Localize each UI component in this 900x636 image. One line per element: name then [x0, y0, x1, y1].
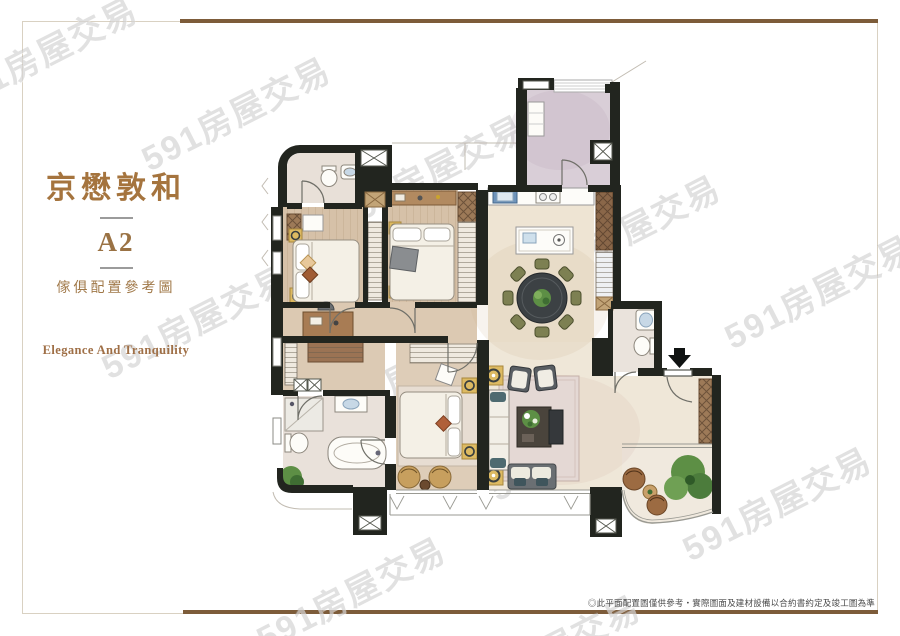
plan-subtitle: 傢俱配置參考圖: [18, 277, 214, 297]
project-title: 京懋敦和: [18, 163, 214, 207]
entry-cabinet: [699, 379, 712, 443]
floor-plan: [250, 55, 750, 547]
unit-label: A2: [18, 227, 214, 258]
english-tagline: Elegance And Tranquility: [18, 343, 214, 358]
utility-strip: [596, 192, 613, 310]
living-room-furniture: [481, 365, 579, 489]
divider-top: [100, 217, 133, 219]
entry-arrow-icon: [668, 348, 691, 368]
divider-bottom: [100, 267, 133, 269]
frame-thick-bottom-line: [183, 610, 878, 614]
disclaimer-text: ◎此平面配置圖僅供參考・實際圖面及建材設備以合約書約定及竣工圖為準: [588, 597, 875, 609]
page: 591房屋交易591房屋交易591房屋交易591房屋交易591房屋交易591房屋…: [0, 0, 900, 636]
frame-thick-top-line: [180, 19, 878, 23]
